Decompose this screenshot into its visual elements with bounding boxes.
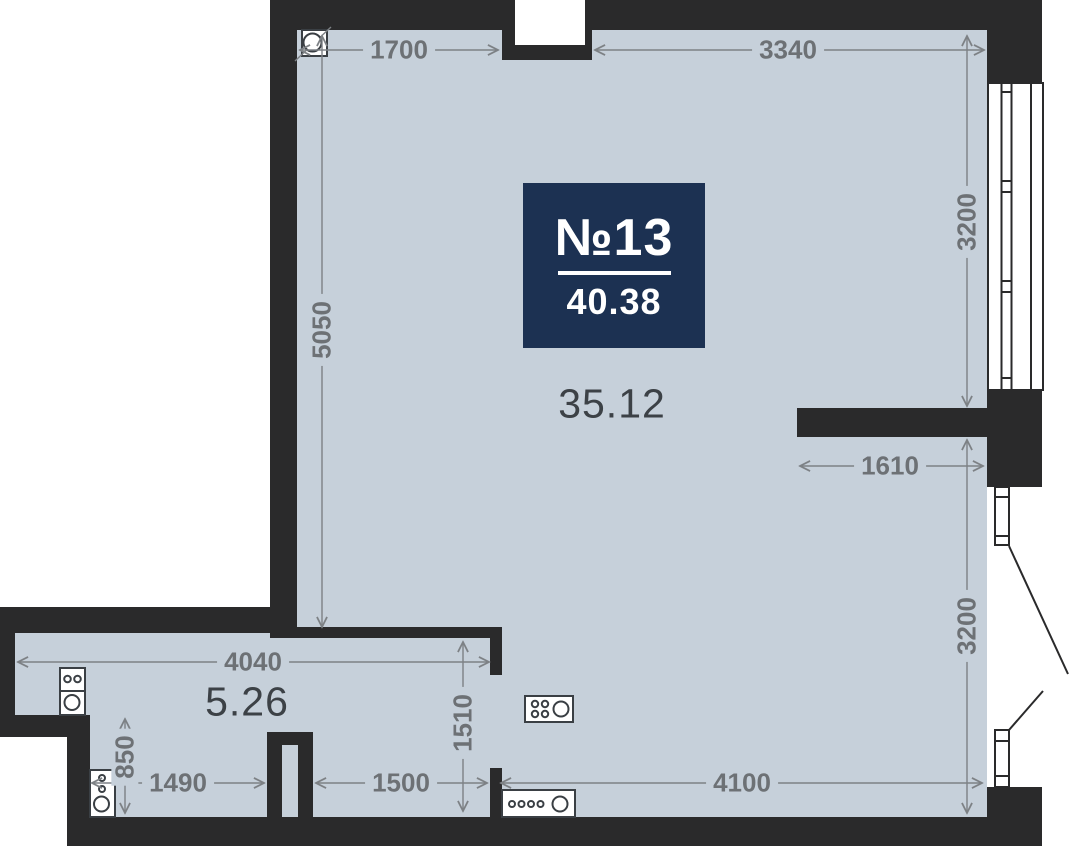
dim-1610: 1610 [854, 452, 926, 479]
door-swing-upper [1009, 546, 1068, 674]
unit-badge: №13 40.38 [523, 183, 705, 348]
dim-3340: 3340 [752, 36, 824, 63]
floor-plan-canvas: 1700 3340 5050 3200 1610 3200 4040 1510 … [0, 0, 1069, 846]
pipe-riser-icon [295, 27, 331, 61]
balcony-door-icon [995, 487, 1068, 787]
badge-divider [558, 271, 671, 275]
dim-1490: 1490 [142, 769, 214, 796]
dim-1500: 1500 [365, 769, 437, 796]
door-swing-lower [1009, 691, 1043, 730]
unit-number-label: №13 [555, 212, 674, 264]
counter-sink-icon [502, 790, 575, 817]
dim-1700: 1700 [363, 36, 435, 63]
dim-1510: 1510 [449, 687, 476, 759]
unit-total-area-label: 40.38 [566, 284, 661, 320]
stove-icon [60, 668, 85, 691]
dim-3200-bottom: 3200 [953, 590, 980, 662]
dim-4100: 4100 [706, 769, 778, 796]
sink-icon [60, 691, 85, 715]
hob-icon [525, 696, 573, 722]
window-icon [988, 83, 1043, 390]
plan-linework [0, 0, 1069, 846]
dim-3200-top: 3200 [953, 186, 980, 258]
area-main-room: 35.12 [558, 381, 666, 428]
dimension-lines [18, 36, 984, 813]
dim-850: 850 [111, 728, 138, 785]
area-kitchen: 5.26 [205, 679, 289, 726]
dim-5050: 5050 [308, 294, 335, 366]
dim-4040: 4040 [217, 648, 289, 675]
